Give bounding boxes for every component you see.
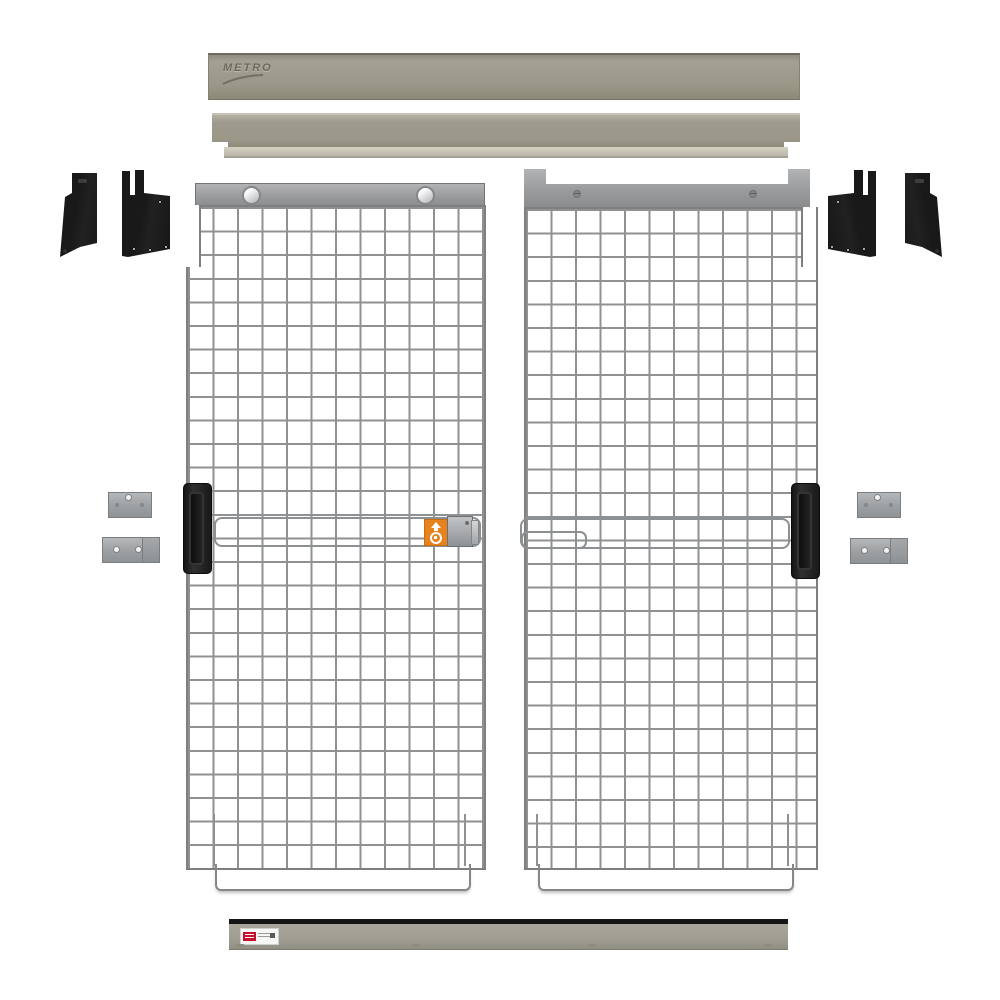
shipping-label	[240, 928, 279, 945]
bracket-dimple	[140, 503, 144, 507]
bracket-hole	[920, 247, 924, 251]
mesh-inner-wire	[464, 814, 466, 866]
mesh-inner-wire	[787, 814, 789, 866]
wall-bracket-right-bottom	[850, 538, 908, 564]
bracket-hole	[836, 200, 840, 204]
kick-plate-foot	[412, 944, 420, 947]
brand-red-logo	[243, 932, 256, 941]
bracket-hole	[148, 248, 152, 252]
right-panel-bottom-guide	[538, 864, 794, 891]
up-arrow-icon	[434, 528, 438, 531]
kick-plate-foot	[764, 944, 772, 947]
bracket-hole	[862, 247, 866, 251]
kick-plate-foot	[236, 944, 244, 947]
padlock-icon	[430, 532, 442, 544]
screw-icon	[574, 191, 580, 197]
bracket-dimple	[864, 503, 868, 507]
metro-logo-text: METRO	[223, 62, 273, 74]
latch-flange	[471, 520, 479, 545]
metro-logo-swoosh-icon	[221, 74, 265, 86]
bracket-hole	[935, 249, 939, 253]
left-panel-header	[195, 183, 485, 207]
label-text-line	[258, 936, 270, 937]
right-panel-handle	[791, 483, 820, 579]
bracket-emboss-mark	[78, 179, 87, 183]
hanger-bracket-left-outer	[50, 171, 107, 259]
top-valance-rail: METRO	[208, 53, 800, 100]
right-panel-header	[524, 169, 810, 208]
screw-icon	[750, 191, 756, 197]
handle-recess	[189, 492, 204, 565]
track-rail-lip	[224, 147, 788, 158]
bracket-dimple	[115, 503, 119, 507]
roller-icon	[416, 186, 435, 205]
mesh-inner-wire	[213, 814, 215, 866]
right-panel-mesh-step	[801, 207, 816, 267]
wall-bracket-left-top	[108, 492, 152, 518]
bracket-hole	[884, 548, 889, 553]
bracket-hole	[875, 495, 880, 500]
left-panel-bottom-guide	[215, 864, 471, 891]
bracket-hole	[164, 245, 168, 249]
right-panel-slot-bar	[521, 531, 587, 549]
wall-bracket-right-top	[857, 492, 901, 518]
bracket-hole	[830, 245, 834, 249]
label-text-line	[258, 933, 270, 934]
hanger-bracket-right-outer	[895, 171, 952, 259]
latch-screw-icon	[465, 521, 469, 525]
hanger-bracket-left-inner	[122, 167, 170, 257]
product-image-stage: METRO	[0, 0, 1000, 1000]
wall-bracket-left-bottom	[102, 537, 160, 563]
bracket-hole	[126, 495, 131, 500]
bracket-hole	[63, 249, 67, 253]
bracket-dimple	[889, 503, 893, 507]
warning-sticker	[424, 519, 449, 546]
kick-plate-foot	[588, 944, 596, 947]
bracket-hole	[136, 547, 141, 552]
bracket-hole	[132, 247, 136, 251]
track-rail	[212, 113, 800, 150]
left-panel-handle	[183, 483, 212, 574]
handle-recess	[797, 492, 812, 570]
bracket-emboss-mark	[915, 179, 924, 183]
mesh-inner-wire	[536, 814, 538, 866]
bottom-kick-plate	[229, 919, 788, 950]
roller-icon	[242, 186, 261, 205]
bracket-hole	[78, 247, 82, 251]
latch-plate	[447, 516, 473, 547]
label-code-square	[270, 933, 275, 938]
bracket-hole	[862, 548, 867, 553]
bracket-hole	[158, 200, 162, 204]
bracket-hole	[114, 547, 119, 552]
bracket-hole	[846, 248, 850, 252]
hanger-bracket-right-inner	[828, 167, 876, 257]
left-panel-mesh-step	[186, 205, 201, 267]
bracket-step	[142, 538, 159, 562]
bracket-step	[890, 539, 907, 563]
